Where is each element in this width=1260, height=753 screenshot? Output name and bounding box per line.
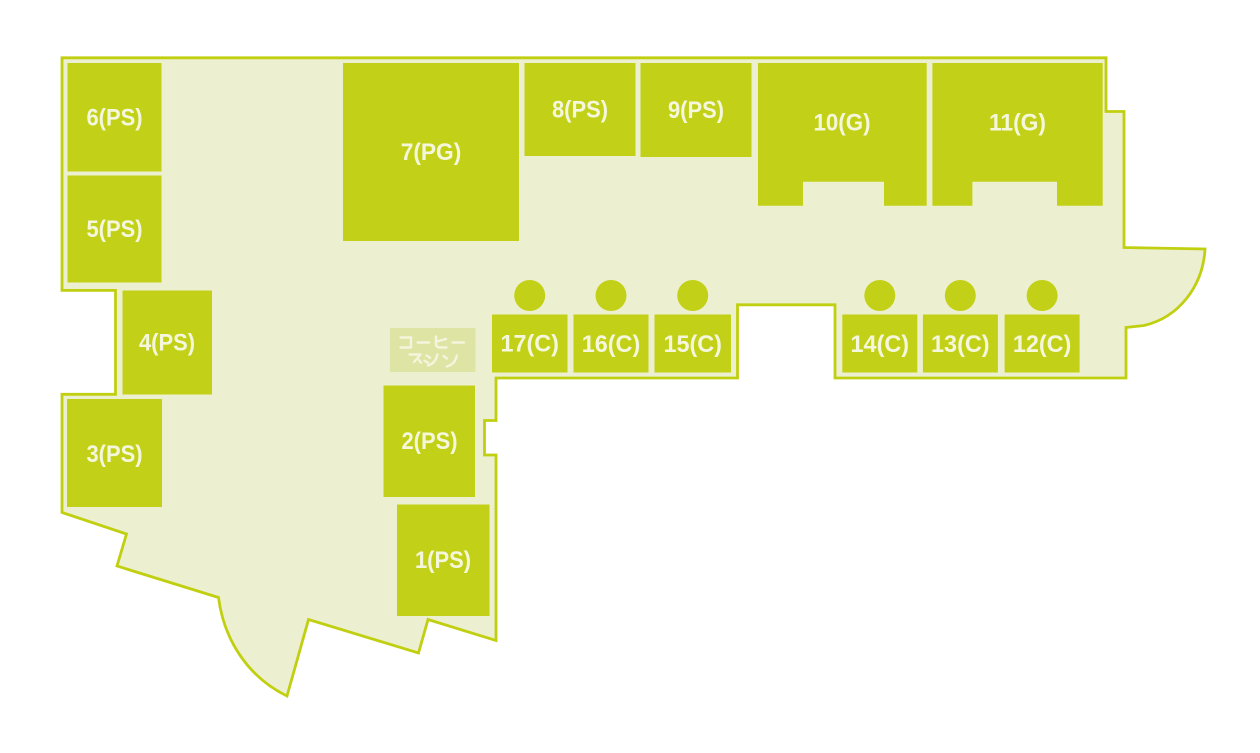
svg-text:14(C): 14(C) [851, 331, 910, 358]
svg-text:12(C): 12(C) [1013, 331, 1072, 358]
svg-text:4(PS): 4(PS) [139, 330, 195, 357]
svg-text:8(PS): 8(PS) [552, 97, 608, 124]
svg-text:10(G): 10(G) [814, 109, 871, 136]
svg-text:3(PS): 3(PS) [87, 441, 143, 468]
svg-text:2(PS): 2(PS) [402, 428, 458, 455]
svg-text:15(C): 15(C) [663, 331, 722, 358]
svg-text:17(C): 17(C) [500, 331, 559, 358]
svg-text:6(PS): 6(PS) [87, 104, 143, 131]
svg-text:11(G): 11(G) [989, 109, 1046, 136]
svg-text:1(PS): 1(PS) [415, 547, 471, 574]
svg-text:9(PS): 9(PS) [668, 97, 724, 124]
svg-text:7(PG): 7(PG) [401, 139, 462, 166]
svg-text:13(C): 13(C) [931, 331, 990, 358]
svg-text:5(PS): 5(PS) [87, 216, 143, 243]
svg-text:16(C): 16(C) [582, 331, 641, 358]
